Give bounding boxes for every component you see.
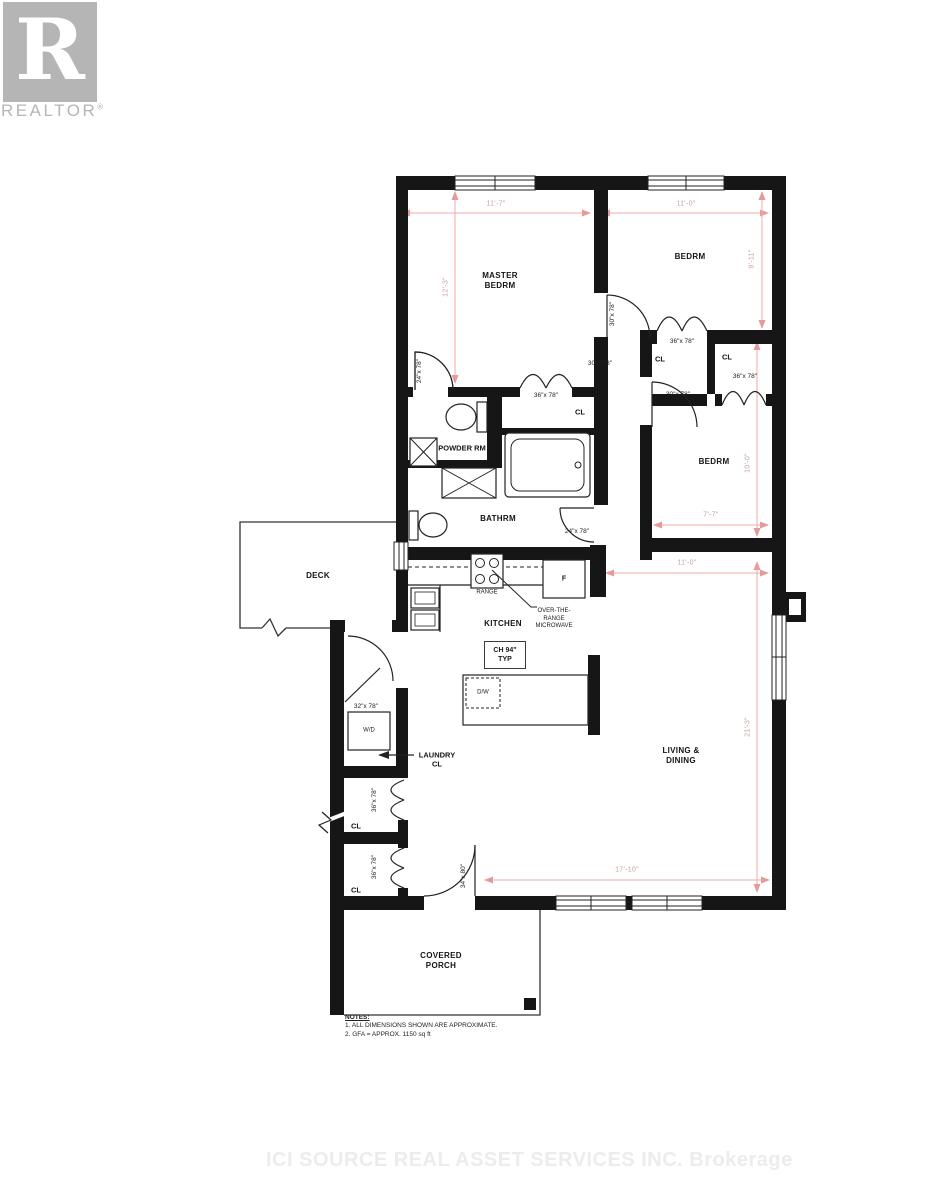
- closet-label-bedroom-top: CL: [655, 354, 665, 363]
- notes-block: NOTES: 1. ALL DIMENSIONS SHOWN ARE APPRO…: [345, 1014, 497, 1039]
- dim-living-bottom-width: 17'-10": [615, 867, 639, 876]
- closet-label-bedroom-mid: CL: [722, 352, 732, 361]
- dim-master-depth: 12'-3": [443, 277, 452, 297]
- exterior-fixture-box: [789, 599, 801, 615]
- dim-master-width: 11'-7": [486, 201, 505, 210]
- room-label-laundry-closet: LAUNDRY CL: [419, 751, 455, 770]
- notes-line-1: 1. ALL DIMENSIONS SHOWN ARE APPROXIMATE.: [345, 1022, 497, 1030]
- ceiling-height-note: CH 94" TYP: [484, 641, 526, 669]
- dim-living-depth: 21'-3": [745, 717, 754, 737]
- notes-line-2: 2. GFA = APPROX. 1150 sq ft: [345, 1031, 497, 1039]
- door-label-bedroom-mid-closet: 36"x 78": [733, 373, 757, 381]
- door-label-master-closet: 36"x 78": [534, 392, 558, 400]
- dim-living-width: 11'-0": [677, 560, 696, 569]
- door-label-master-entry: 30"x 78": [609, 302, 617, 326]
- range-label: RANGE: [476, 589, 497, 597]
- notes-title: NOTES:: [345, 1014, 497, 1022]
- dim-bedroom-top-depth: 9'-11": [749, 249, 758, 268]
- room-label-powder-room: POWDER RM: [438, 443, 486, 452]
- door-label-powder: 24"x 78": [416, 359, 424, 383]
- door-label-hall-closet-1: 36"x 78": [371, 788, 379, 812]
- room-label-bedroom-mid: BEDRM: [699, 457, 730, 467]
- dim-bedroom-top-width: 11'-0": [676, 201, 695, 210]
- dim-bedroom-mid-width: 7'-7": [703, 512, 718, 521]
- door-label-hall: 30"x 78": [588, 360, 612, 368]
- room-label-bedroom-top: BEDRM: [675, 252, 706, 262]
- closet-label-master: CL: [575, 407, 585, 416]
- room-label-deck: DECK: [306, 571, 330, 581]
- door-label-entry: 34"x 80": [460, 864, 468, 888]
- door-label-bedroom-mid-entry: 30"x 78": [666, 391, 690, 399]
- fixtures: [348, 402, 590, 759]
- room-label-kitchen: KITCHEN: [484, 619, 522, 629]
- dim-bedroom-mid-depth: 10'-0": [745, 453, 754, 473]
- room-label-covered-porch: COVERED PORCH: [420, 951, 462, 971]
- room-label-living-dining: LIVING & DINING: [662, 746, 699, 766]
- floor-plan-page: R REALTOR®: [0, 0, 928, 1200]
- microwave-label: OVER-THE- RANGE MICROWAVE: [536, 608, 573, 631]
- room-label-master-bedroom: MASTER BEDRM: [482, 271, 518, 291]
- washer-dryer-label: W/D: [363, 727, 375, 735]
- door-label-laundry: 32"x 78": [354, 703, 378, 711]
- porch-post: [524, 998, 536, 1010]
- room-label-bathroom: BATHRM: [480, 514, 516, 524]
- closet-label-hall-2: CL: [351, 885, 361, 894]
- door-label-bedroom-top-closet: 36"x 78": [670, 338, 694, 346]
- brokerage-watermark: ICI SOURCE REAL ASSET SERVICES INC. Brok…: [266, 1149, 793, 1172]
- door-label-bath: 24"x 78": [565, 528, 589, 536]
- closet-label-hall-1: CL: [351, 821, 361, 830]
- fridge-label: F: [562, 576, 566, 585]
- dishwasher-label: D/W: [477, 689, 489, 697]
- door-label-hall-closet-2: 36"x 78": [371, 855, 379, 879]
